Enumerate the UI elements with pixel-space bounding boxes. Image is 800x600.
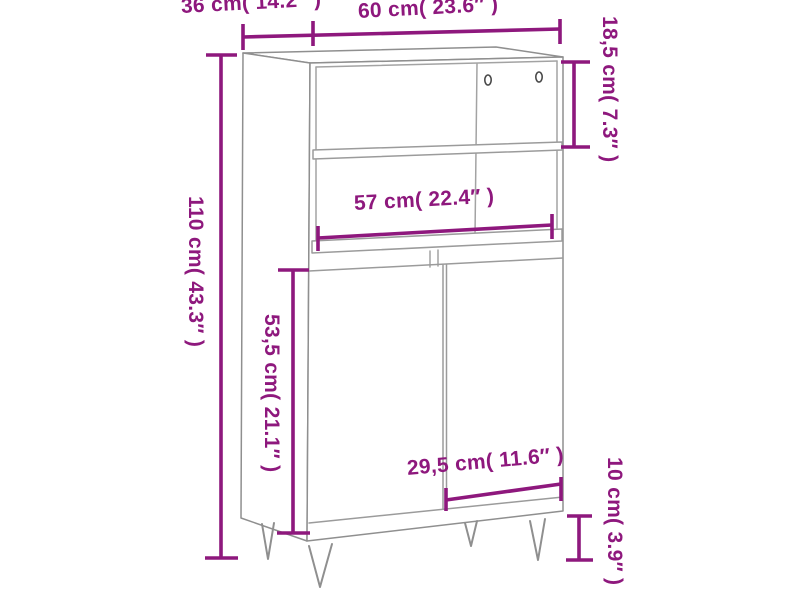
leg-back-left bbox=[262, 523, 274, 559]
dimension-label-total-height: 110 cm( 43.3″ ) bbox=[185, 196, 206, 347]
back-panel-hole-right bbox=[536, 72, 542, 82]
dimension-line-total-height bbox=[205, 55, 238, 558]
leg-back-right bbox=[465, 521, 477, 546]
dimension-line-leg-height bbox=[566, 516, 593, 560]
leg-front-left bbox=[309, 544, 332, 587]
leg-front-right bbox=[530, 519, 545, 560]
dimension-line-top-compartment-height bbox=[561, 62, 590, 147]
dimension-line-top bbox=[243, 19, 560, 50]
dimension-diagram: 36 cm( 14.2″ ) 60 cm( 23.6″ ) 18,5 cm( 7… bbox=[0, 0, 800, 600]
dimension-label-top-compartment-height: 18,5 cm( 7.3″ ) bbox=[599, 16, 620, 162]
cabinet-drawing bbox=[241, 47, 563, 587]
dimension-label-leg-height: 10 cm( 3.9″ ) bbox=[604, 457, 625, 585]
back-panel-hole-left bbox=[485, 75, 491, 85]
diagram-canvas bbox=[0, 0, 800, 600]
dimension-label-door-height: 53,5 cm( 21.1″ ) bbox=[261, 314, 282, 472]
